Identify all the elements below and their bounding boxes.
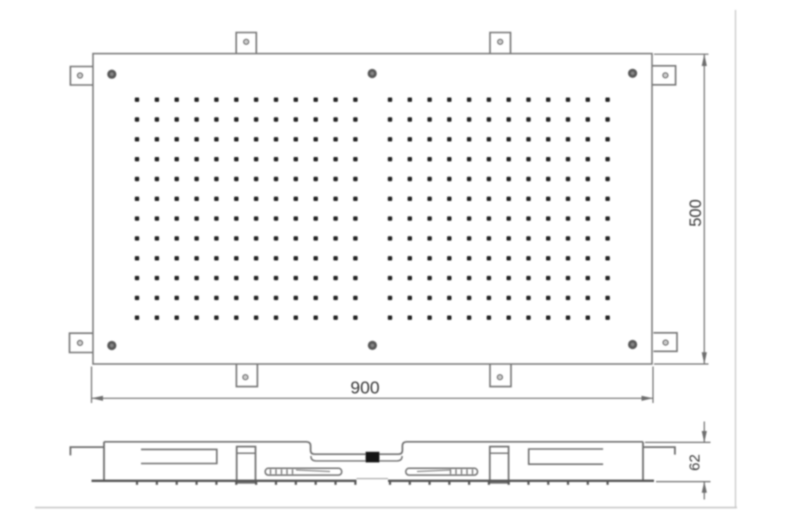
svg-text:900: 900 — [350, 378, 379, 398]
svg-text:500: 500 — [687, 199, 705, 227]
svg-text:62: 62 — [686, 454, 703, 471]
